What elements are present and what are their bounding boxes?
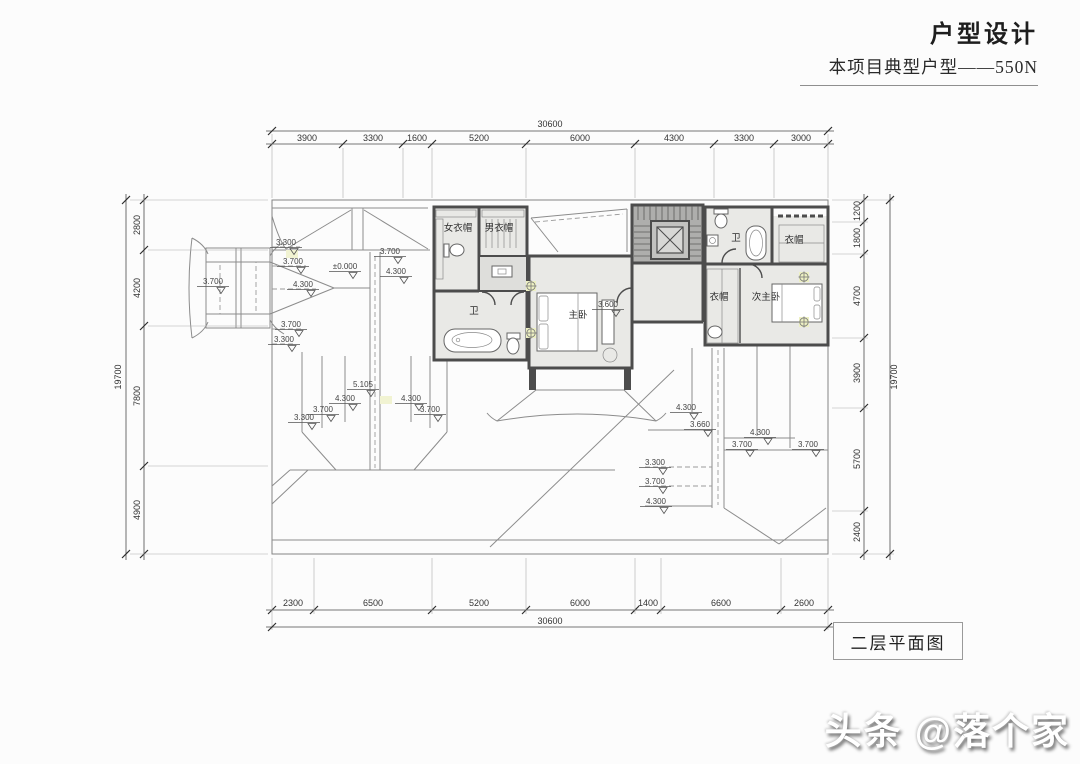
plan-caption-box: 二层平面图 bbox=[833, 622, 963, 660]
level-value: 3.300 bbox=[274, 335, 295, 344]
level-value: 3.700 bbox=[380, 247, 401, 256]
dim-bottom-seg: 2300 bbox=[283, 598, 303, 608]
dim-bottom-seg: 2600 bbox=[794, 598, 814, 608]
grid-marker bbox=[526, 328, 537, 339]
room-label-master-bedroom: 主卧 bbox=[568, 309, 588, 321]
level-value: 3.700 bbox=[732, 440, 753, 449]
dim-top: 30600 3900 3300 1600 5200 6000 4300 3300… bbox=[266, 119, 834, 198]
dim-top-overall: 30600 bbox=[537, 119, 562, 129]
level-value: 3.700 bbox=[283, 257, 304, 266]
dim-bottom-seg: 5200 bbox=[469, 598, 489, 608]
drawing-sheet: 户型设计 本项目典型户型——550N bbox=[0, 0, 1080, 764]
dim-right-seg: 2400 bbox=[852, 522, 862, 542]
level-value: ±0.000 bbox=[333, 262, 358, 271]
dim-bottom-seg: 1400 bbox=[638, 598, 658, 608]
dim-right-seg: 5700 bbox=[852, 449, 862, 469]
level-value: 5.105 bbox=[353, 380, 374, 389]
dim-top-seg: 6000 bbox=[570, 133, 590, 143]
dim-top-seg: 4300 bbox=[664, 133, 684, 143]
dim-left-overall: 19700 bbox=[113, 364, 123, 389]
level-value: 3.300 bbox=[276, 238, 297, 247]
grid-marker bbox=[799, 272, 810, 283]
level-value: 3.700 bbox=[203, 277, 224, 286]
level-value: 4.300 bbox=[676, 403, 697, 412]
dim-bottom-overall: 30600 bbox=[537, 616, 562, 626]
dim-top-seg: 3300 bbox=[363, 133, 383, 143]
dim-top-seg: 5200 bbox=[469, 133, 489, 143]
grid-marker bbox=[799, 317, 810, 328]
dim-left-seg: 4900 bbox=[132, 500, 142, 520]
level-value: 4.300 bbox=[750, 428, 771, 437]
dim-right-seg: 4700 bbox=[852, 286, 862, 306]
grid-marker bbox=[526, 281, 537, 292]
level-value: 3.700 bbox=[281, 320, 302, 329]
level-value: 4.300 bbox=[401, 394, 422, 403]
dim-top-seg: 3000 bbox=[791, 133, 811, 143]
dim-right-seg: 1800 bbox=[852, 228, 862, 248]
dim-top-seg: 1600 bbox=[407, 133, 427, 143]
room-label-closet-second: 衣帽 bbox=[709, 291, 728, 303]
level-value: 3.300 bbox=[645, 458, 666, 467]
dim-right-seg: 3900 bbox=[852, 363, 862, 383]
level-value: 4.300 bbox=[646, 497, 667, 506]
dim-top-seg: 3900 bbox=[297, 133, 317, 143]
dim-bottom: 2300 6500 5200 6000 1400 6600 2600 30600 bbox=[266, 558, 834, 631]
level-value: 4.300 bbox=[293, 280, 314, 289]
dim-bottom-seg: 6000 bbox=[570, 598, 590, 608]
level-value: 3.660 bbox=[690, 420, 711, 429]
dim-left-seg: 4200 bbox=[132, 278, 142, 298]
level-value: 3.700 bbox=[645, 477, 666, 486]
dim-right-overall: 19700 bbox=[889, 364, 899, 389]
plan-caption: 二层平面图 bbox=[851, 629, 946, 654]
level-value: 4.300 bbox=[335, 394, 356, 403]
dim-bottom-seg: 6500 bbox=[363, 598, 383, 608]
room-label-closet-top-right: 衣帽 bbox=[784, 234, 803, 246]
level-value: 4.300 bbox=[386, 267, 407, 276]
level-value: 3.700 bbox=[313, 405, 334, 414]
dim-right-seg: 1200 bbox=[852, 201, 862, 221]
dim-left-seg: 2800 bbox=[132, 215, 142, 235]
room-label-bath-master: 卫 bbox=[469, 306, 479, 317]
dim-top-seg: 3300 bbox=[734, 133, 754, 143]
level-value: 3.700 bbox=[798, 440, 819, 449]
level-value: 3.700 bbox=[420, 405, 441, 414]
room-label-closet-women: 女衣帽 bbox=[444, 222, 473, 234]
elevator bbox=[651, 221, 689, 259]
watermark: 头条 @落个家 bbox=[825, 701, 1070, 755]
dim-bottom-seg: 6600 bbox=[711, 598, 731, 608]
room-label-second-master: 次主卧 bbox=[752, 291, 781, 303]
room-label-bath-second: 卫 bbox=[731, 233, 741, 244]
dim-right: 1200 1800 4700 3900 5700 2400 19700 bbox=[832, 194, 899, 560]
room-label-closet-men: 男衣帽 bbox=[485, 222, 514, 234]
level-value: 3.600 bbox=[598, 300, 619, 309]
stair-core bbox=[632, 205, 703, 263]
dim-left-seg: 7800 bbox=[132, 386, 142, 406]
